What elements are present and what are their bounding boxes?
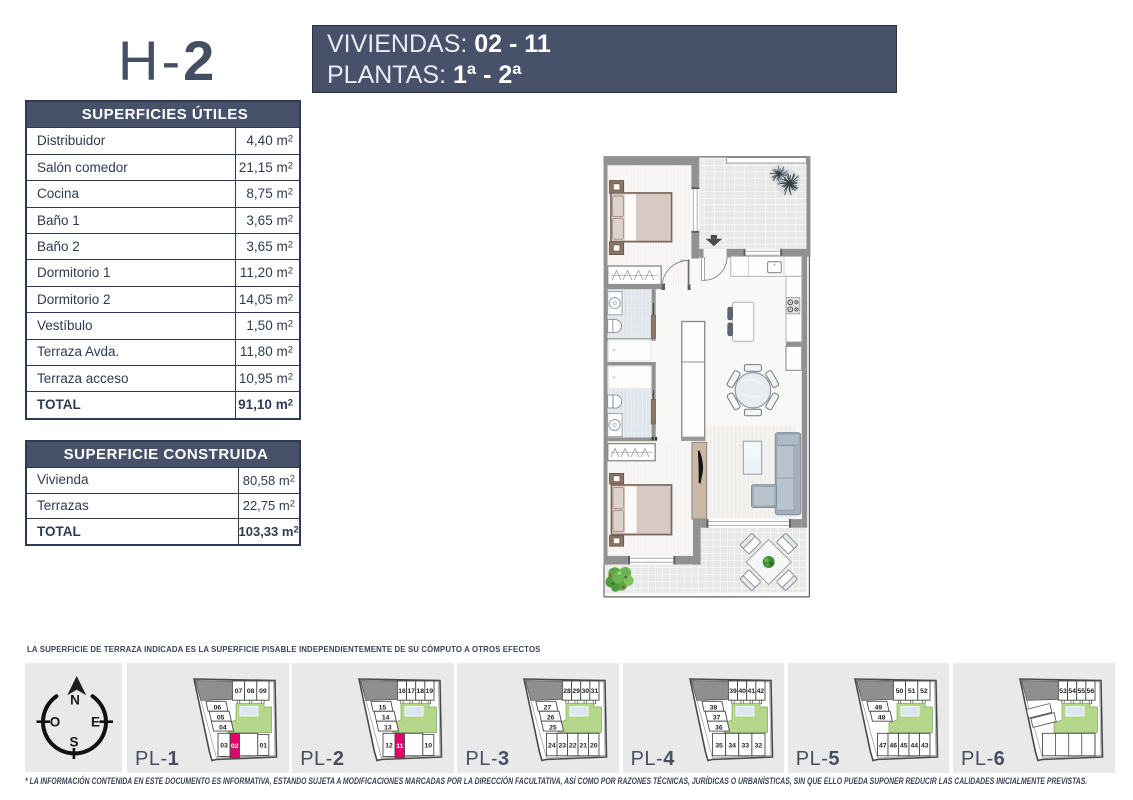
svg-text:02: 02 (231, 743, 239, 750)
svg-text:27: 27 (544, 705, 552, 712)
svg-text:32: 32 (754, 742, 762, 749)
svg-text:17: 17 (408, 688, 416, 695)
svg-text:45: 45 (900, 742, 908, 749)
svg-text:47: 47 (879, 742, 887, 749)
svg-text:26: 26 (547, 715, 555, 722)
svg-text:51: 51 (908, 688, 916, 695)
svg-text:19: 19 (426, 688, 434, 695)
svg-text:09: 09 (259, 688, 267, 695)
svg-text:10: 10 (425, 743, 433, 750)
svg-text:36: 36 (715, 724, 723, 731)
svg-text:25: 25 (550, 724, 558, 731)
svg-text:16: 16 (398, 688, 406, 695)
svg-text:34: 34 (728, 742, 736, 749)
svg-text:37: 37 (713, 715, 721, 722)
svg-text:52: 52 (920, 688, 928, 695)
svg-text:39: 39 (729, 688, 737, 695)
svg-text:42: 42 (756, 688, 764, 695)
svg-text:E: E (91, 715, 100, 730)
svg-text:29: 29 (573, 688, 581, 695)
svg-text:24: 24 (548, 742, 556, 749)
svg-text:40: 40 (738, 688, 746, 695)
svg-text:18: 18 (417, 688, 425, 695)
svg-text:14: 14 (382, 715, 390, 722)
svg-text:41: 41 (747, 688, 755, 695)
svg-text:04: 04 (219, 724, 227, 731)
svg-text:30: 30 (582, 688, 590, 695)
svg-text:55: 55 (1077, 688, 1085, 695)
svg-text:06: 06 (214, 705, 222, 712)
svg-text:49: 49 (874, 705, 882, 712)
svg-text:48: 48 (878, 715, 886, 722)
svg-text:S: S (69, 735, 78, 750)
svg-text:56: 56 (1087, 688, 1095, 695)
svg-text:31: 31 (591, 688, 599, 695)
svg-text:38: 38 (709, 705, 717, 712)
svg-text:33: 33 (741, 742, 749, 749)
svg-text:46: 46 (889, 742, 897, 749)
svg-text:28: 28 (564, 688, 572, 695)
svg-text:N: N (70, 693, 80, 708)
svg-text:07: 07 (235, 688, 243, 695)
svg-text:05: 05 (217, 715, 225, 722)
svg-text:11: 11 (396, 743, 403, 750)
svg-text:01: 01 (260, 743, 268, 750)
svg-text:23: 23 (559, 742, 567, 749)
svg-text:22: 22 (569, 742, 577, 749)
svg-text:43: 43 (921, 742, 929, 749)
svg-text:44: 44 (910, 742, 918, 749)
svg-text:13: 13 (384, 724, 392, 731)
svg-text:21: 21 (580, 742, 588, 749)
svg-text:20: 20 (590, 742, 598, 749)
svg-text:35: 35 (715, 742, 723, 749)
svg-text:08: 08 (247, 688, 255, 695)
svg-text:O: O (50, 715, 61, 730)
svg-text:12: 12 (385, 743, 393, 750)
svg-text:53: 53 (1059, 688, 1067, 695)
svg-text:54: 54 (1068, 688, 1076, 695)
svg-text:03: 03 (220, 743, 228, 750)
svg-text:50: 50 (896, 688, 904, 695)
svg-text:15: 15 (379, 705, 387, 712)
